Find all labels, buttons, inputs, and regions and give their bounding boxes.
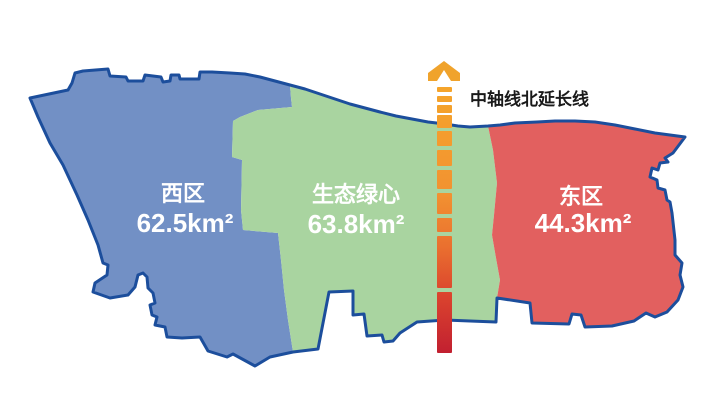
- region-green-heart-area: 63.8km²: [308, 209, 405, 239]
- region-east-area: 44.3km²: [535, 208, 632, 238]
- axis-dash: [437, 131, 452, 146]
- axis-dash: [437, 236, 452, 288]
- axis-dash: [437, 150, 452, 166]
- axis-label: 中轴线北延长线: [470, 89, 589, 109]
- region-green-heart-label: 生态绿心: [312, 182, 400, 207]
- axis-arrow-up-icon: [428, 61, 460, 81]
- axis-dash: [437, 105, 452, 113]
- region-east-label: 东区: [559, 184, 603, 209]
- district-map: 西区 62.5km² 生态绿心 63.8km² 东区 44.3km² 中轴线北延…: [0, 0, 718, 407]
- axis-dash: [437, 170, 452, 189]
- axis-dash: [437, 87, 452, 92]
- axis-dash: [437, 193, 452, 214]
- district-map-figure: 西区 62.5km² 生态绿心 63.8km² 东区 44.3km² 中轴线北延…: [0, 0, 718, 407]
- axis-dash: [437, 218, 452, 232]
- region-west-area: 62.5km²: [137, 208, 234, 238]
- axis-dash: [437, 115, 452, 128]
- axis-dash: [437, 292, 452, 353]
- axis-dash: [437, 96, 452, 102]
- region-west-label: 西区: [161, 181, 205, 206]
